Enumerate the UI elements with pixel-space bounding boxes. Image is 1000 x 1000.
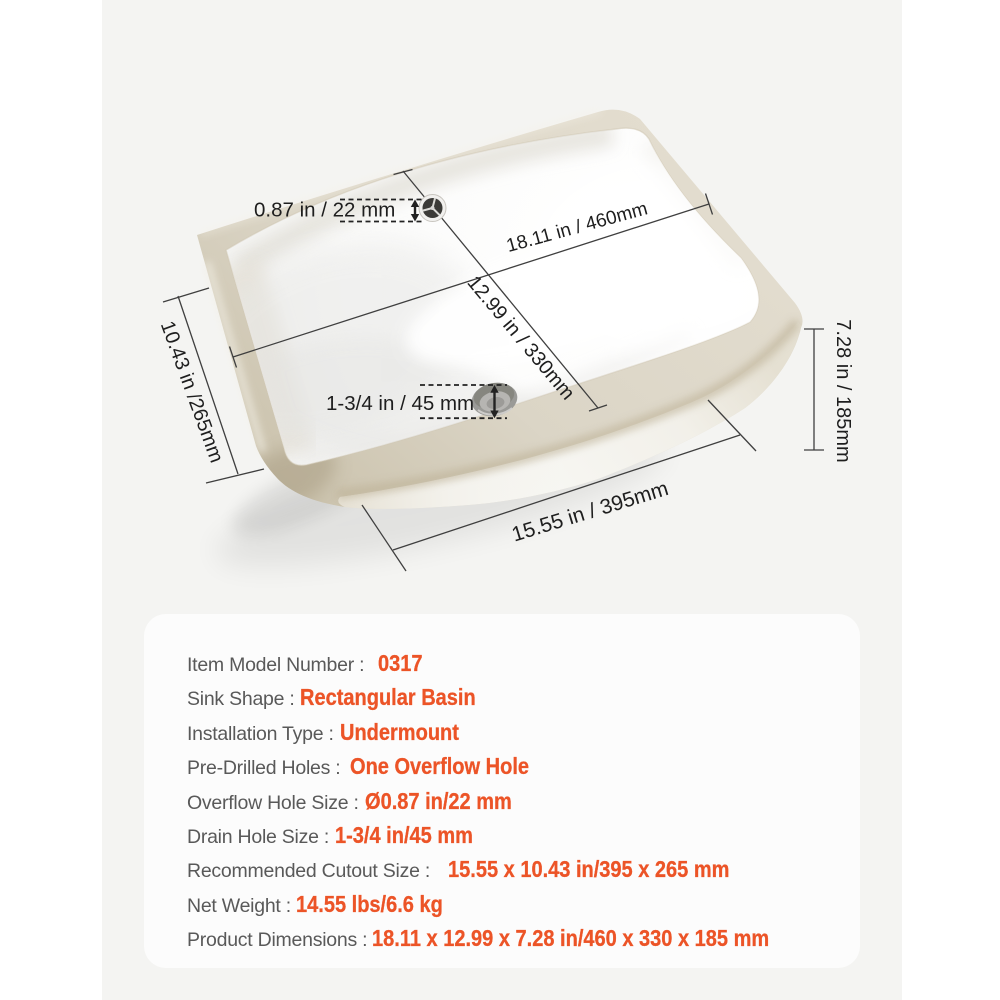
svg-text:7.28 in / 185mm: 7.28 in / 185mm xyxy=(832,319,854,462)
svg-text:10.43 in /265mm: 10.43 in /265mm xyxy=(156,318,228,466)
svg-text:0.87 in / 22 mm: 0.87 in / 22 mm xyxy=(254,199,395,222)
svg-text:1-3/4 in / 45 mm: 1-3/4 in / 45 mm xyxy=(326,392,474,415)
